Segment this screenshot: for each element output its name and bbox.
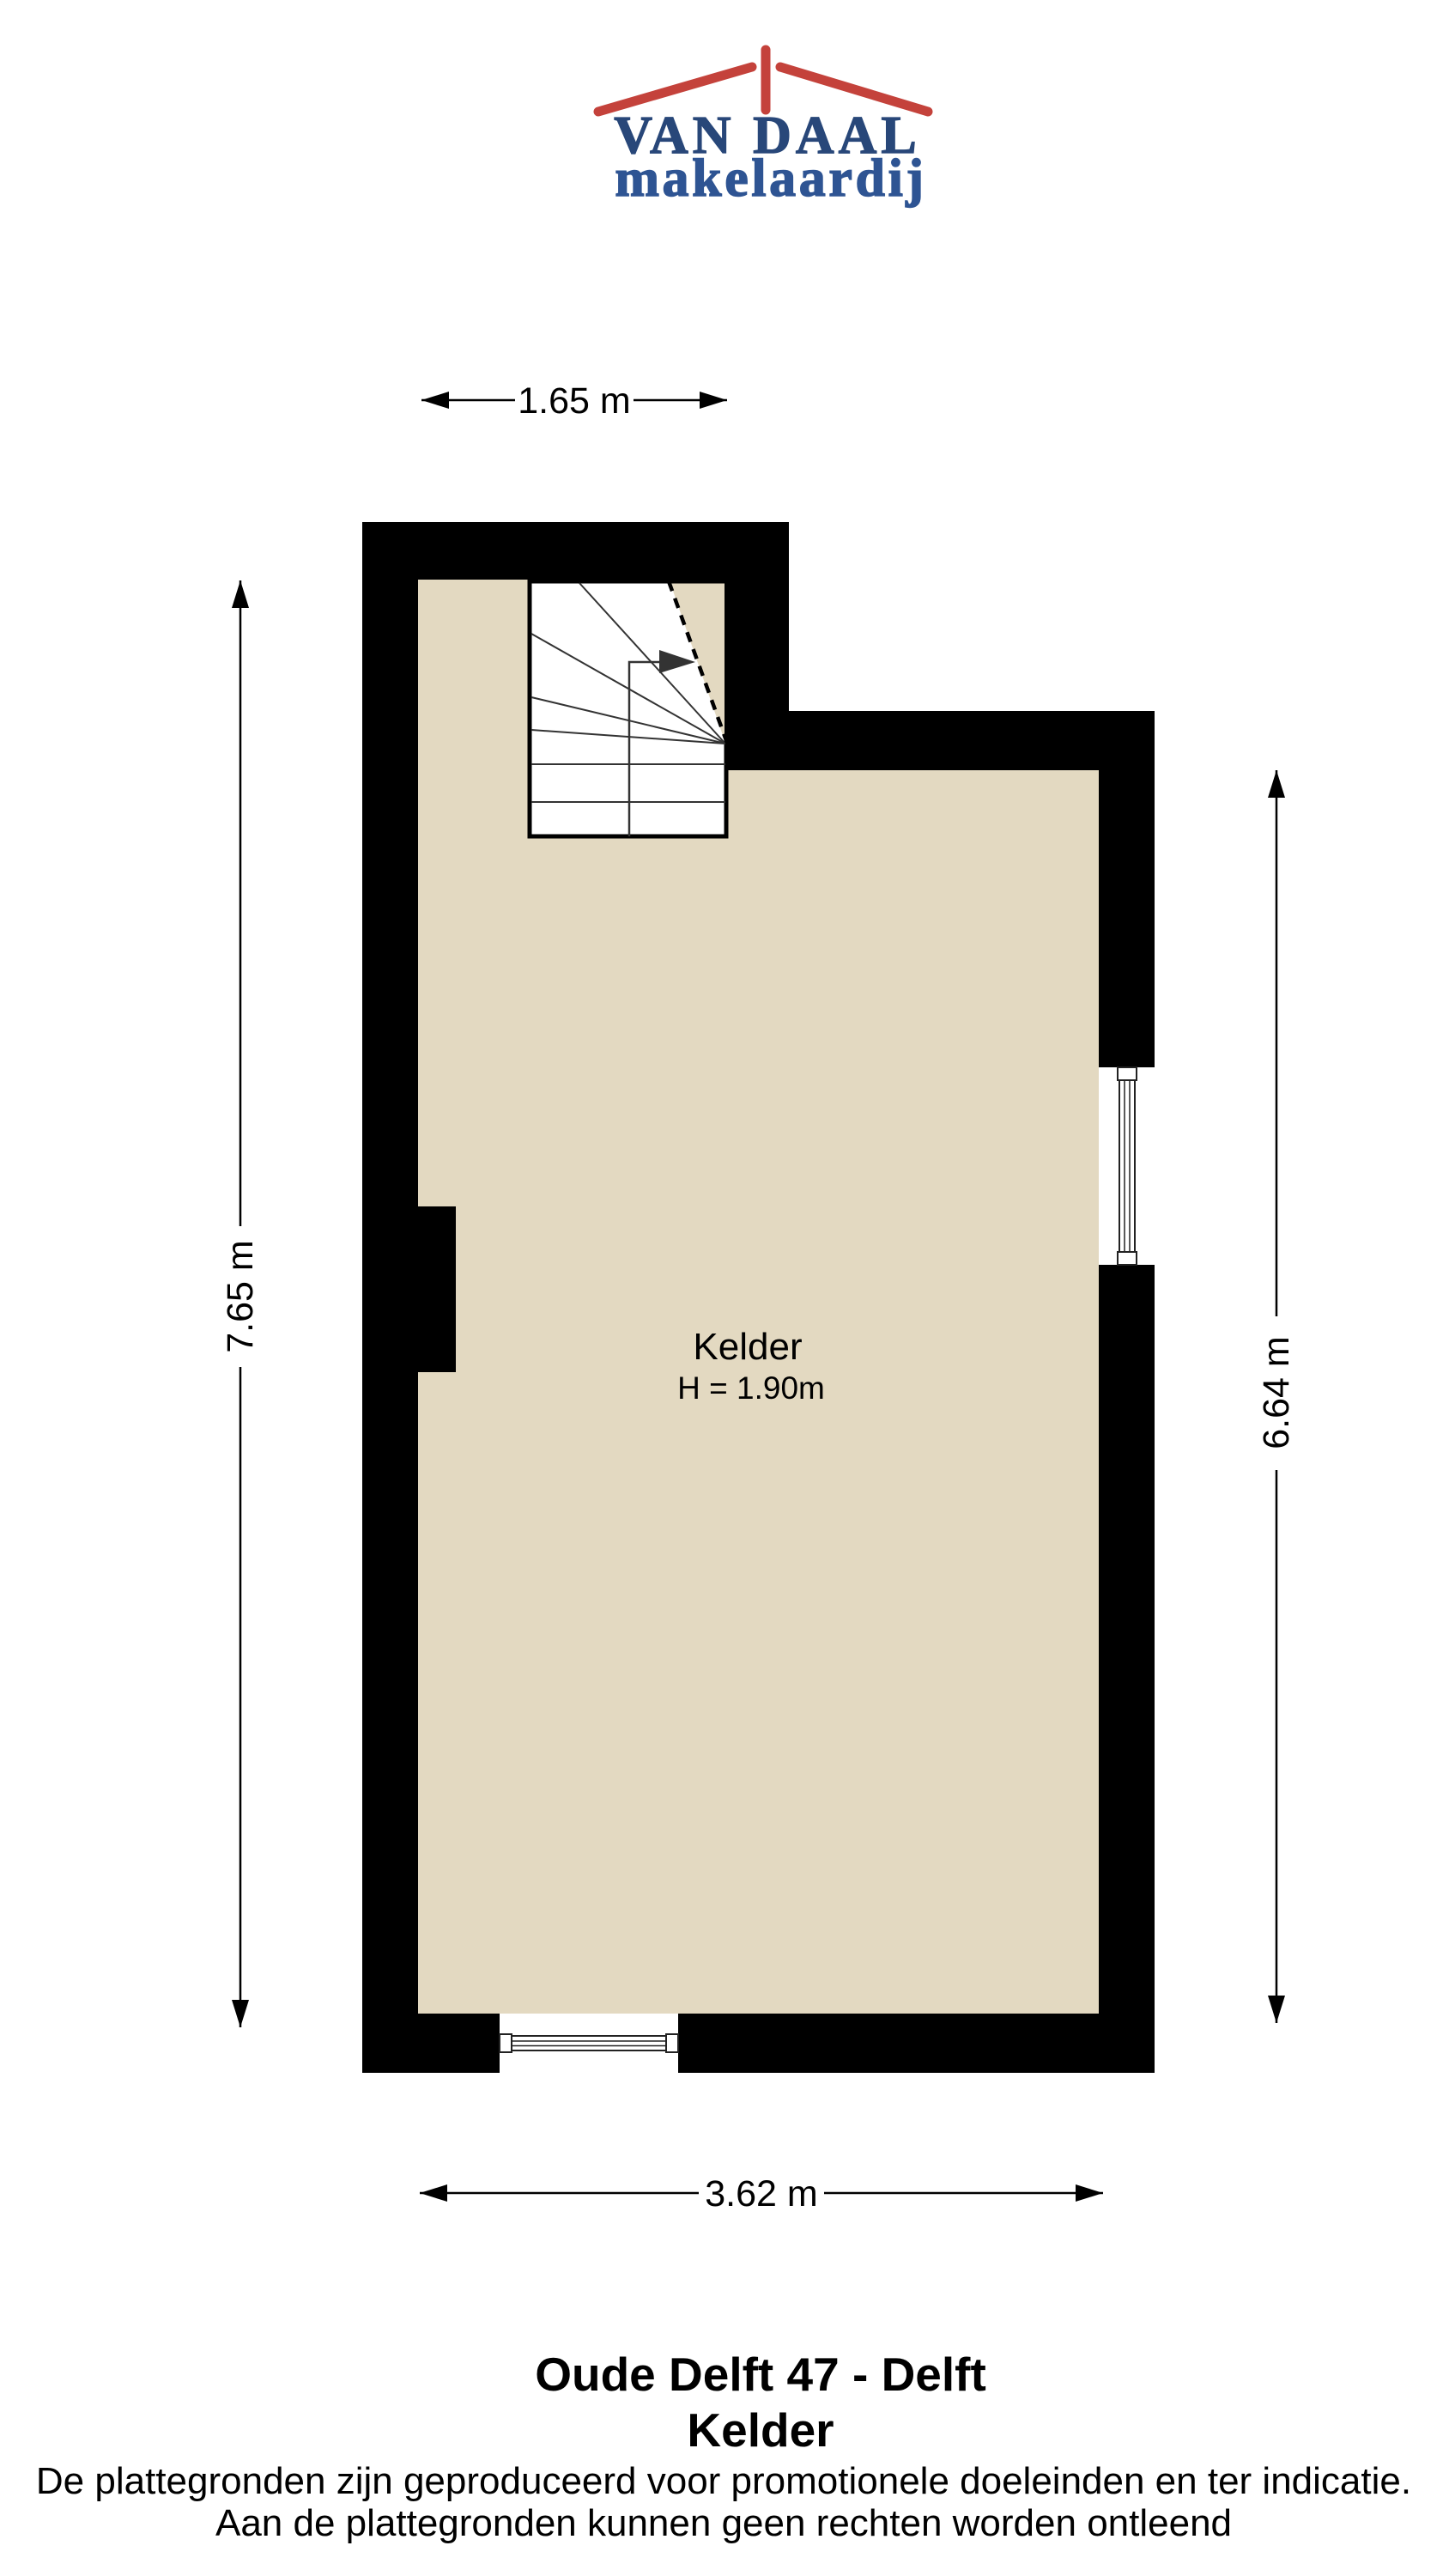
svg-text:6.64 m: 6.64 m [1256, 1336, 1297, 1449]
svg-text:Aan de plattegronden kunnen ge: Aan de plattegronden kunnen geen rechten… [215, 2502, 1232, 2544]
svg-text:Oude Delft 47 - Delft: Oude Delft 47 - Delft [535, 2348, 986, 2401]
svg-text:H = 1.90m: H = 1.90m [677, 1370, 825, 1406]
svg-text:makelaardij: makelaardij [615, 149, 926, 208]
svg-text:3.62 m: 3.62 m [705, 2173, 817, 2215]
svg-text:Kelder: Kelder [693, 1326, 802, 1368]
svg-text:De plattegronden zijn geproduc: De plattegronden zijn geproduceerd voor … [36, 2460, 1411, 2502]
svg-text:7.65 m: 7.65 m [220, 1240, 261, 1352]
svg-text:Kelder: Kelder [687, 2403, 834, 2457]
svg-text:1.65 m: 1.65 m [518, 380, 630, 422]
